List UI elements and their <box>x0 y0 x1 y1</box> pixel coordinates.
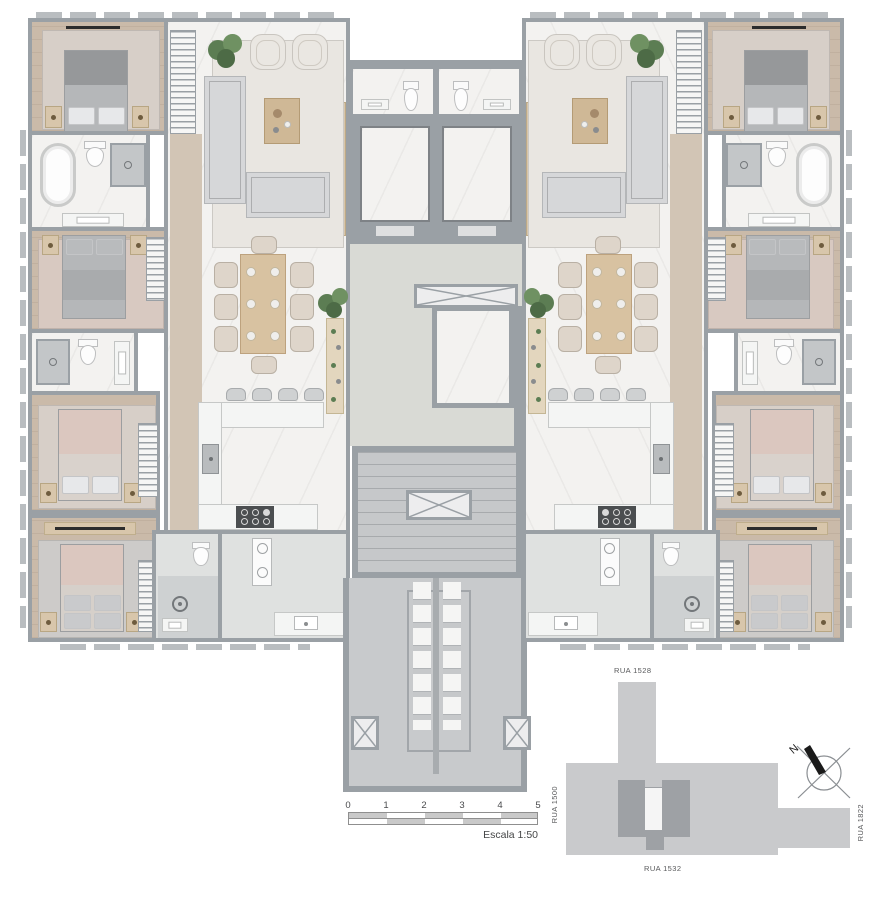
nightstand-icon <box>725 235 742 255</box>
stool-icon <box>548 388 568 401</box>
bedroom-1 <box>28 18 168 135</box>
sink-vanity-icon <box>114 341 130 385</box>
dining-chair-icon <box>251 356 277 374</box>
scale-tick-row: 012345 <box>348 800 538 812</box>
powder-room-right <box>436 66 522 118</box>
service-wall <box>218 534 222 638</box>
armchair-icon <box>292 34 328 70</box>
street-label-right: RUA 1822 <box>856 804 865 841</box>
stool-icon <box>278 388 298 401</box>
bed-icon <box>748 544 812 632</box>
bedroom-2 <box>704 227 844 333</box>
coffee-table-icon <box>264 98 300 144</box>
dining-table-icon <box>240 254 286 354</box>
nightstand-icon <box>40 612 57 632</box>
bathroom-1 <box>722 131 844 233</box>
bed-icon <box>750 409 814 501</box>
stair-landing <box>406 490 472 520</box>
closet-icon <box>170 30 196 134</box>
dining-chair-icon <box>634 326 658 352</box>
nightstand-icon <box>42 235 59 255</box>
window-ticks-bottom-left <box>60 644 310 650</box>
bedroom-2 <box>28 227 168 333</box>
closet-icon <box>714 423 734 497</box>
shower-icon <box>726 143 762 187</box>
elevator-door <box>376 226 414 236</box>
pantry-shelf <box>326 318 344 414</box>
dining-chair-icon <box>290 262 314 288</box>
nightstand-icon <box>723 106 740 128</box>
nightstand-icon <box>45 106 62 128</box>
shower-icon <box>802 339 836 385</box>
bed-icon <box>746 235 810 319</box>
dining-table-icon <box>586 254 632 354</box>
bathroom-2 <box>734 329 844 395</box>
bed-icon <box>60 544 124 632</box>
dining-chair-icon <box>290 294 314 320</box>
cooktop-icon <box>236 506 274 528</box>
chaise-icon <box>246 172 330 218</box>
closet-icon <box>138 423 158 497</box>
scale-tick: 2 <box>421 800 426 811</box>
bed-icon <box>62 235 126 319</box>
wing-left <box>28 18 350 642</box>
pantry-shelf <box>528 318 546 414</box>
nightstand-icon <box>813 235 830 255</box>
bed-icon <box>58 409 122 501</box>
footprint-notch <box>645 780 662 787</box>
site-lot-east <box>778 808 850 848</box>
sink-icon <box>684 618 710 632</box>
ramp-treads <box>413 582 431 730</box>
toilet-icon <box>192 542 210 566</box>
sink-icon <box>483 99 511 110</box>
closet-icon <box>676 30 702 134</box>
scale-tick: 3 <box>459 800 464 811</box>
dining-chair-icon <box>290 326 314 352</box>
closet-icon <box>706 237 726 301</box>
street-label-top: RUA 1528 <box>614 666 651 675</box>
shower-head-icon <box>172 596 188 612</box>
core-corridor <box>350 306 434 446</box>
armchair-icon <box>544 34 580 70</box>
sink-vanity-icon <box>62 213 124 227</box>
elevator-bank <box>350 114 522 244</box>
bedroom-1 <box>704 18 844 135</box>
tv-icon <box>752 26 806 29</box>
window-ticks-left <box>20 130 26 628</box>
street-label-bottom: RUA 1532 <box>644 864 681 873</box>
core-corridor-lower <box>432 406 514 446</box>
kitchen-sink-icon <box>202 444 219 474</box>
cooktop-icon <box>598 506 636 528</box>
dresser-icon <box>736 522 828 535</box>
living-dining-kitchen <box>164 18 350 534</box>
scale-tick: 5 <box>535 800 540 811</box>
dining-chair-icon <box>214 262 238 288</box>
washer-dryer-icon <box>600 538 620 586</box>
chaise-icon <box>542 172 626 218</box>
stool-icon <box>600 388 620 401</box>
living-dining-kitchen <box>522 18 708 534</box>
scale-tick: 1 <box>383 800 388 811</box>
service-elevator <box>432 306 514 408</box>
scale-label: Escala 1:50 <box>348 829 538 841</box>
shower-icon <box>36 339 70 385</box>
dining-chair-icon <box>251 236 277 254</box>
toilet-icon <box>662 542 680 566</box>
site-key-plan: RUA 1528 RUA 1500 RUA 1822 RUA 1532 N <box>548 658 872 892</box>
sofa-icon <box>626 76 668 204</box>
sink-vanity-icon <box>748 213 810 227</box>
plant-icon <box>524 288 554 318</box>
window-ticks-bottom-right <box>560 644 810 650</box>
nightstand-icon <box>810 106 827 128</box>
sink-vanity-icon <box>742 341 758 385</box>
dining-chair-icon <box>558 326 582 352</box>
nightstand-icon <box>815 483 832 503</box>
ramp-treads <box>443 582 461 730</box>
coffee-table-icon <box>572 98 608 144</box>
service-area <box>152 530 350 642</box>
elevator-cab <box>360 126 430 222</box>
dining-chair-icon <box>214 294 238 320</box>
bathroom-2 <box>28 329 138 395</box>
bed-icon <box>744 50 808 132</box>
bedroom-4 <box>712 514 844 642</box>
nightstand-icon <box>40 483 57 503</box>
shaft-column <box>503 716 531 750</box>
shaft-column <box>351 716 379 750</box>
bathroom-1 <box>28 131 150 233</box>
bedroom-4 <box>28 514 160 642</box>
armchair-icon <box>250 34 286 70</box>
washer-dryer-icon <box>252 538 272 586</box>
north-compass-icon: N <box>782 732 858 808</box>
shower-head-icon <box>684 596 700 612</box>
nightstand-icon <box>132 106 149 128</box>
stool-icon <box>574 388 594 401</box>
toilet-icon <box>766 141 788 167</box>
duct-shaft <box>414 284 518 308</box>
shower-icon <box>110 143 146 187</box>
tv-icon <box>66 26 120 29</box>
window-ticks-right <box>846 130 852 628</box>
hall-corridor <box>670 134 702 530</box>
service-area <box>522 530 720 642</box>
stool-icon <box>304 388 324 401</box>
core-wall-sliver <box>514 306 522 446</box>
floor-plan-sheet: 012345 Escala 1:50 RUA 1528 RUA 1500 RUA… <box>0 0 872 900</box>
toilet-icon <box>78 339 98 365</box>
wing-right <box>522 18 844 642</box>
kitchen-island <box>548 402 652 428</box>
ramp-corridor <box>343 578 527 792</box>
scale-bar: 012345 Escala 1:50 <box>348 800 538 841</box>
dining-chair-icon <box>558 262 582 288</box>
stool-icon <box>252 388 272 401</box>
dining-chair-icon <box>634 262 658 288</box>
nightstand-icon <box>130 235 147 255</box>
elevator-cab <box>442 126 512 222</box>
armchair-icon <box>586 34 622 70</box>
laundry-sink-icon <box>294 616 318 630</box>
dining-chair-icon <box>214 326 238 352</box>
ramp-rail <box>433 578 439 774</box>
laundry-sink-icon <box>554 616 578 630</box>
scale-bar-row <box>348 818 538 825</box>
elevator-door <box>458 226 496 236</box>
footprint-stub <box>646 837 664 850</box>
scale-tick: 0 <box>345 800 350 811</box>
kitchen-island <box>220 402 324 428</box>
footprint-courtyard <box>645 788 662 830</box>
street-label-left: RUA 1500 <box>550 786 559 823</box>
nightstand-icon <box>815 612 832 632</box>
dining-chair-icon <box>595 236 621 254</box>
stool-icon <box>626 388 646 401</box>
closet-icon <box>146 237 166 301</box>
dresser-icon <box>44 522 136 535</box>
north-label: N <box>787 742 801 756</box>
bedroom-3 <box>28 391 160 514</box>
bathtub-icon <box>796 143 832 207</box>
scale-tick: 4 <box>497 800 502 811</box>
dining-chair-icon <box>634 294 658 320</box>
bathtub-icon <box>40 143 76 207</box>
bed-icon <box>64 50 128 132</box>
toilet-icon <box>84 141 106 167</box>
dining-chair-icon <box>558 294 582 320</box>
toilet-icon <box>774 339 794 365</box>
stairwell <box>352 446 522 578</box>
sink-icon <box>162 618 188 632</box>
bedroom-3 <box>712 391 844 514</box>
plant-icon <box>318 288 348 318</box>
toilet-icon <box>403 81 419 111</box>
dining-chair-icon <box>595 356 621 374</box>
kitchen-sink-icon <box>653 444 670 474</box>
sink-icon <box>361 99 389 110</box>
plant-icon <box>630 34 664 68</box>
sofa-icon <box>204 76 246 204</box>
site-lot-stem <box>618 682 656 764</box>
powder-room-left <box>350 66 436 118</box>
plant-icon <box>208 34 242 68</box>
stool-icon <box>226 388 246 401</box>
toilet-icon <box>453 81 469 111</box>
